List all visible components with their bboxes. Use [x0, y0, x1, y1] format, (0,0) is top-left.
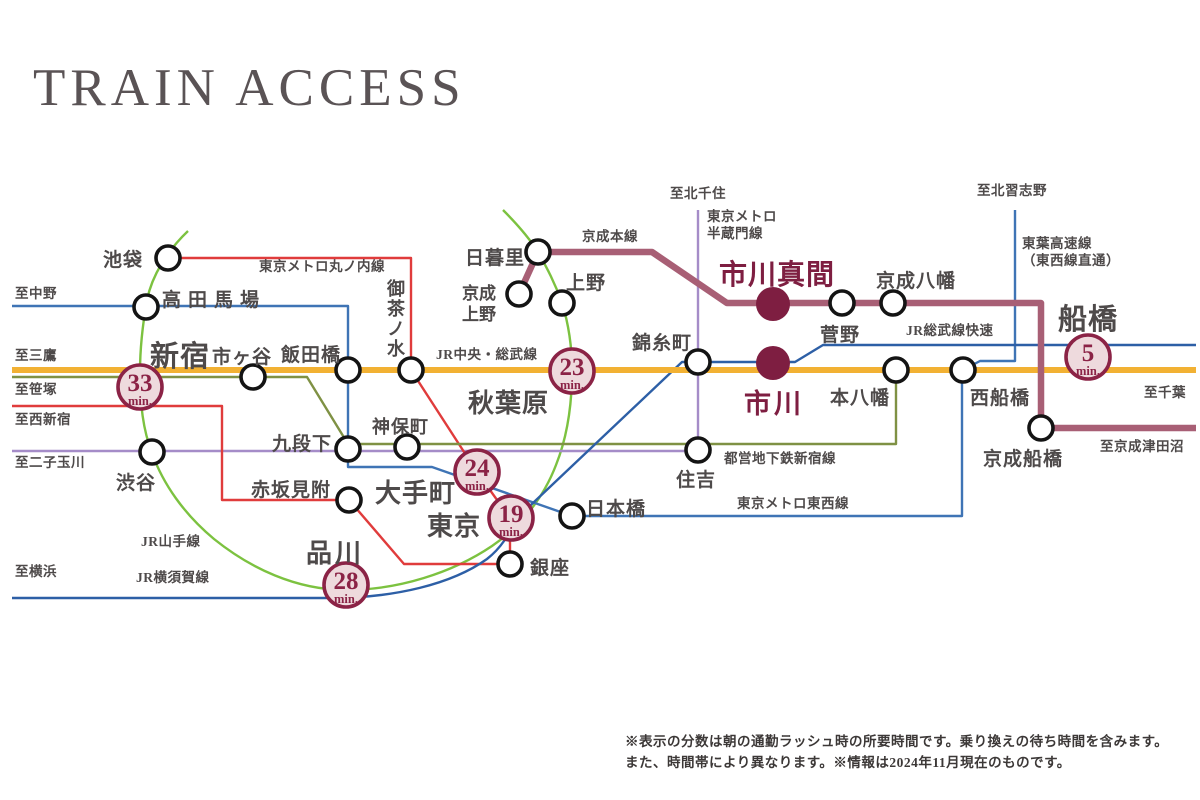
badge-minutes: 33 — [128, 370, 153, 397]
line-label-hanzomon-line2: 半蔵門線 — [707, 226, 777, 243]
badge-tokyo: 19 min. — [489, 496, 533, 540]
line-label-hanzomon: 東京メトロ 半蔵門線 — [707, 209, 777, 243]
edge-label-yokohama: 至横浜 — [15, 564, 57, 581]
station-label-kudanshita: 九段下 — [272, 429, 332, 456]
edge-label-nishishinjuku: 至西新宿 — [15, 412, 71, 429]
featured-circle-ichikawa — [756, 346, 790, 380]
line-label-yokosuka: JR横須賀線 — [136, 570, 210, 587]
station-label-sugano: 菅野 — [820, 320, 860, 347]
line-label-sobu-rapid: JR総武線快速 — [906, 323, 994, 340]
station-circle-keisei-yawata — [881, 291, 905, 315]
station-circle-sugano — [830, 291, 854, 315]
disclaimer-line2: また、時間帯により異なります。※情報は2024年11月現在のものです。 — [625, 753, 1168, 774]
badge-minutes: 19 — [499, 501, 524, 528]
station-label-nihombashi: 日本橋 — [586, 494, 646, 521]
badge-minutes: 24 — [465, 455, 491, 482]
badge-akihabara: 23 min. — [550, 349, 594, 393]
badge-unit: min. — [499, 525, 523, 539]
station-label-ochanomizu: 御茶ノ水 — [382, 279, 408, 359]
badge-unit: min. — [465, 479, 489, 493]
badge-unit: min. — [128, 394, 152, 408]
badge-unit: min. — [1076, 364, 1100, 378]
badge-unit: min. — [334, 592, 358, 606]
edge-label-keiseitsudanuma: 至京成津田沼 — [1100, 439, 1184, 456]
station-label-keisei-yawata: 京成八幡 — [876, 266, 956, 293]
station-label-ueno: 上野 — [566, 268, 606, 295]
line-label-marunouchi: 東京メトロ丸ノ内線 — [259, 259, 385, 276]
station-label-kinshicho: 錦糸町 — [632, 328, 692, 355]
station-label-keisei-funabashi: 京成船橋 — [983, 444, 1063, 471]
station-label-nishifunabashi: 西船橋 — [970, 383, 1030, 410]
station-label-otemachi: 大手町 — [375, 473, 456, 510]
badge-minutes: 23 — [560, 354, 585, 381]
station-label-nippori: 日暮里 — [465, 243, 525, 270]
station-label-ichikawamama: 市川真間 — [719, 253, 835, 293]
station-label-iidabashi: 飯田橋 — [281, 340, 341, 367]
line-label-toyo: 東葉高速線 （東西線直通） — [1022, 236, 1120, 270]
station-label-shinagawa: 品川 — [306, 533, 364, 570]
line-label-toyo-line1: 東葉高速線 — [1022, 236, 1120, 253]
disclaimer-notes: ※表示の分数は朝の通勤ラッシュ時の所要時間です。乗り換えの待ち時間を含みます。 … — [625, 732, 1168, 774]
station-label-ginza: 銀座 — [530, 553, 570, 580]
badge-minutes: 5 — [1082, 340, 1095, 367]
station-label-akasakamitsuke: 赤坂見附 — [251, 475, 331, 502]
station-label-ichigaya: 市ヶ谷 — [212, 342, 272, 369]
station-label-keisei-ueno: 京成 上野 — [462, 283, 496, 326]
station-label-shinjuku: 新宿 — [150, 333, 210, 375]
edge-label-sasazuka: 至笹塚 — [15, 382, 57, 399]
station-label-keisei-ueno-line1: 京成 — [462, 283, 496, 304]
line-label-toyo-line2: （東西線直通） — [1022, 253, 1120, 270]
station-circle-ochanomizu — [399, 358, 423, 382]
line-label-tozai: 東京メトロ東西線 — [737, 496, 849, 513]
station-label-motoyawata: 本八幡 — [830, 383, 890, 410]
badge-otemachi: 24 min. — [455, 450, 499, 494]
station-circle-nippori — [526, 240, 550, 264]
edge-label-chiba: 至千葉 — [1144, 385, 1186, 402]
badge-funabashi: 5 min. — [1066, 335, 1110, 379]
line-label-keisei-main: 京成本線 — [582, 229, 638, 246]
station-label-akihabara: 秋葉原 — [468, 383, 549, 420]
station-circle-keisei-funabashi — [1029, 416, 1053, 440]
station-circle-sumiyoshi — [686, 438, 710, 462]
station-label-sumiyoshi: 住吉 — [676, 465, 716, 492]
edge-label-futakotamagawa: 至二子玉川 — [15, 455, 85, 472]
station-label-shibuya: 渋谷 — [116, 468, 156, 495]
station-label-tokyo: 東京 — [427, 506, 481, 543]
badge-minutes: 28 — [334, 568, 359, 595]
station-circle-shibuya — [140, 440, 164, 464]
badge-unit: min. — [560, 378, 584, 392]
line-label-yamanote: JR山手線 — [141, 534, 201, 551]
edge-label-nakano: 至中野 — [15, 286, 57, 303]
line-label-toei-shinjuku: 都営地下鉄新宿線 — [724, 451, 836, 468]
edge-label-kitasenju: 至北千住 — [670, 186, 726, 203]
station-circle-nishifunabashi — [951, 358, 975, 382]
station-label-takadanobaba: 高田馬場 — [162, 285, 266, 312]
disclaimer-line1: ※表示の分数は朝の通勤ラッシュ時の所要時間です。乗り換えの待ち時間を含みます。 — [625, 732, 1168, 753]
station-circle-motoyawata — [884, 358, 908, 382]
station-circle-ginza — [498, 552, 522, 576]
station-label-jimbocho: 神保町 — [372, 413, 429, 439]
station-circle-akasakamitsuke — [337, 488, 361, 512]
line-label-chuo-sobu: JR中央・総武線 — [436, 347, 538, 364]
train-access-map: TRAIN ACCESS — [0, 0, 1200, 800]
station-label-ikebukuro: 池袋 — [103, 245, 143, 272]
line-label-hanzomon-line1: 東京メトロ — [707, 209, 777, 226]
station-circle-keisei-ueno — [507, 282, 531, 306]
station-label-funabashi: 船橋 — [1058, 296, 1118, 338]
station-label-keisei-ueno-line2: 上野 — [462, 304, 496, 325]
edge-label-kitanarashino: 至北習志野 — [977, 183, 1047, 200]
station-circle-kudanshita — [336, 437, 360, 461]
station-label-ichikawa: 市川 — [744, 382, 804, 421]
station-circle-takadanobaba — [134, 295, 158, 319]
station-circle-ikebukuro — [156, 246, 180, 270]
station-circle-nihombashi — [560, 504, 584, 528]
edge-label-mitaka: 至三鷹 — [15, 348, 57, 365]
